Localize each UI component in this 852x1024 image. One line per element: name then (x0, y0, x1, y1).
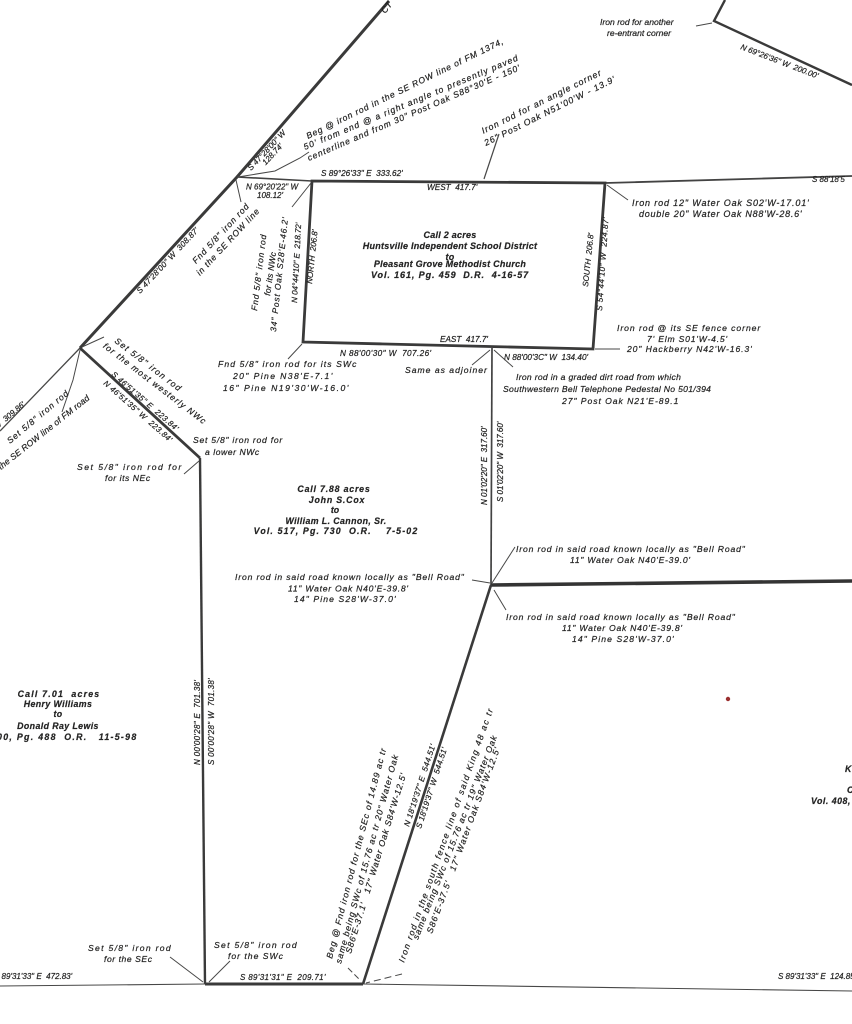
svg-text:Pleasant Grove Methodist Churc: Pleasant Grove Methodist Church (374, 259, 527, 269)
svg-text:EAST 417.7': EAST 417.7' (440, 335, 488, 344)
svg-text:S 89'31'33" E 472.83': S 89'31'33" E 472.83' (0, 972, 73, 981)
svg-text:Call 7.88 acres: Call 7.88 acres (297, 484, 370, 494)
svg-text:S 89'31'33" E 124.85': S 89'31'33" E 124.85' (778, 972, 852, 981)
svg-text:S 89°26'33" E 333.62': S 89°26'33" E 333.62' (321, 169, 403, 178)
svg-text:14" Pine S28'W-37.0': 14" Pine S28'W-37.0' (572, 634, 675, 644)
svg-text:20" Hackberry N42'W-16.3': 20" Hackberry N42'W-16.3' (626, 344, 753, 354)
svg-text:Set 5/8" iron rod: Set 5/8" iron rod (88, 943, 172, 953)
svg-text:Same as adjoiner: Same as adjoiner (405, 365, 488, 375)
svg-text:Vol. 161, Pg. 459 D.R. 4-16-: Vol. 161, Pg. 459 D.R. 4-16-57 (371, 270, 529, 280)
svg-text:Call 7.01 acres: Call 7.01 acres (18, 689, 101, 699)
svg-text:WEST 417.7': WEST 417.7' (427, 183, 478, 192)
svg-text:Henry Williams: Henry Williams (24, 699, 93, 709)
svg-text:Iron rod 12" Water Oak S02'W-1: Iron rod 12" Water Oak S02'W-17.01' (632, 198, 810, 208)
svg-text:Vol. 517, Pg. 730 O.R. 7-5: Vol. 517, Pg. 730 O.R. 7-5-02 (254, 526, 419, 536)
svg-text:Southwestern Bell Telephone Pe: Southwestern Bell Telephone Pedestal No … (503, 384, 711, 394)
svg-text:20" Pine N38'E-7.1': 20" Pine N38'E-7.1' (232, 371, 334, 381)
svg-text:S 89'31'31" E 209.71': S 89'31'31" E 209.71' (240, 973, 326, 982)
svg-text:S 01'02'20" W 317.60': S 01'02'20" W 317.60' (496, 421, 505, 502)
svg-text:Set 5/8" iron rod for: Set 5/8" iron rod for (193, 435, 283, 445)
svg-text:for the SEc: for the SEc (104, 954, 153, 964)
svg-text:27" Post Oak N21'E-89.1: 27" Post Oak N21'E-89.1 (561, 396, 679, 406)
svg-text:re-entrant corner: re-entrant corner (607, 28, 672, 38)
svg-text:Iron rod in a graded dirt road: Iron rod in a graded dirt road from whic… (516, 372, 681, 382)
svg-text:Huntsville Independent School: Huntsville Independent School District (363, 241, 538, 251)
svg-text:S 00'00'28" W 701.38': S 00'00'28" W 701.38' (207, 678, 216, 765)
svg-text:7' Elm S01'W-4.5': 7' Elm S01'W-4.5' (647, 334, 728, 344)
svg-text:00, Pg. 488 O.R. 11-5-98: 00, Pg. 488 O.R. 11-5-98 (0, 732, 138, 742)
svg-text:William L. Cannon, Sr.: William L. Cannon, Sr. (285, 516, 386, 526)
svg-text:N 88'00'3C" W 134.40': N 88'00'3C" W 134.40' (504, 353, 588, 362)
svg-text:Vol. 408,: Vol. 408, (811, 796, 851, 806)
svg-text:N 00'00'28" E 701.38': N 00'00'28" E 701.38' (193, 680, 202, 765)
svg-text:Iron rod for another: Iron rod for another (600, 17, 675, 27)
svg-text:a lower NWc: a lower NWc (205, 447, 260, 457)
svg-text:Donald Ray Lewis: Donald Ray Lewis (17, 721, 99, 731)
svg-text:11" Water Oak N40'E-39.0': 11" Water Oak N40'E-39.0' (570, 555, 691, 565)
svg-text:N 01'02'20" E 317.60': N 01'02'20" E 317.60' (480, 426, 489, 505)
svg-text:Set 5/8" iron rod: Set 5/8" iron rod (214, 940, 298, 950)
svg-text:Iron rod in said road known lo: Iron rod in said road known locally as "… (506, 612, 736, 622)
svg-text:Iron rod in said road known lo: Iron rod in said road known locally as "… (516, 544, 746, 554)
svg-text:11" Water Oak N40'E-39.8': 11" Water Oak N40'E-39.8' (562, 623, 683, 633)
svg-text:108.12': 108.12' (257, 191, 283, 200)
svg-text:double 20" Water Oak N88'W-28.: double 20" Water Oak N88'W-28.6' (639, 209, 802, 219)
svg-text:C: C (847, 785, 852, 795)
svg-text:11" Water Oak N40'E-39.8': 11" Water Oak N40'E-39.8' (288, 584, 409, 594)
svg-text:14" Pine S28'W-37.0': 14" Pine S28'W-37.0' (294, 594, 397, 604)
svg-text:16" Pine N19'30'W-16.0': 16" Pine N19'30'W-16.0' (223, 383, 350, 393)
svg-text:Set 5/8" iron rod for: Set 5/8" iron rod for (77, 462, 183, 472)
svg-text:N 88'00'30" W 707.26': N 88'00'30" W 707.26' (340, 349, 432, 358)
svg-text:Fnd 5/8" iron rod for its SWc: Fnd 5/8" iron rod for its SWc (218, 359, 358, 369)
svg-text:Iron rod @ its SE fence corner: Iron rod @ its SE fence corner (617, 323, 761, 333)
svg-text:John S.Cox: John S.Cox (309, 495, 366, 505)
svg-text:K: K (845, 764, 852, 774)
svg-text:for its NEc: for its NEc (105, 473, 151, 483)
svg-text:Iron rod in said road known lo: Iron rod in said road known locally as "… (235, 572, 465, 582)
svg-text:for the SWc: for the SWc (228, 951, 284, 961)
svg-text:to: to (53, 709, 62, 719)
svg-text:to: to (331, 505, 340, 515)
svg-text:S 88'18'5: S 88'18'5 (812, 175, 845, 184)
svg-text:Call 2 acres: Call 2 acres (423, 230, 476, 240)
